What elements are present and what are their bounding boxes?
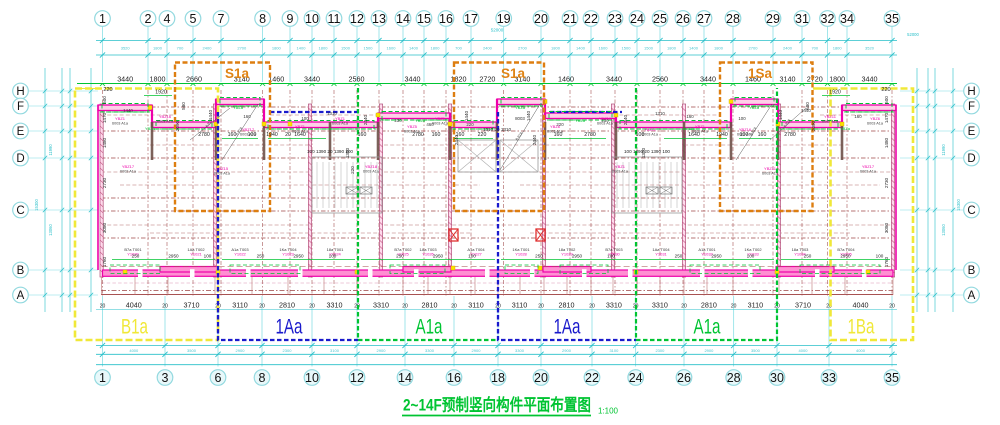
- svg-text:YBZ1: YBZ1: [435, 116, 446, 121]
- svg-text:2~14F预制竖向构件平面布置图: 2~14F预制竖向构件平面布置图: [403, 395, 591, 415]
- svg-text:27: 27: [697, 12, 711, 26]
- svg-text:2900: 2900: [472, 348, 482, 353]
- svg-text:100: 100: [204, 254, 212, 259]
- svg-text:2900: 2900: [562, 348, 572, 353]
- svg-text:6003 A1a: 6003 A1a: [822, 120, 839, 124]
- svg-text:YBZ1: YBZ1: [115, 116, 126, 121]
- svg-text:3140: 3140: [780, 75, 796, 84]
- svg-text:30: 30: [770, 371, 784, 385]
- svg-text:6003 A1a: 6003 A1a: [762, 172, 779, 176]
- svg-text:C: C: [16, 205, 24, 217]
- svg-text:8003: 8003: [515, 116, 525, 121]
- svg-text:1500: 1500: [364, 45, 374, 50]
- svg-text:25: 25: [653, 12, 667, 26]
- svg-text:700: 700: [455, 45, 462, 50]
- svg-text:3300: 3300: [515, 348, 525, 353]
- svg-text:52000: 52000: [907, 32, 919, 37]
- svg-text:YBZa: YBZa: [415, 118, 426, 123]
- svg-text:2560: 2560: [652, 75, 668, 84]
- svg-text:2090: 2090: [175, 120, 180, 131]
- svg-text:3100: 3100: [330, 348, 340, 353]
- svg-text:160: 160: [432, 132, 441, 138]
- svg-text:6003 A1a: 6003 A1a: [112, 122, 129, 126]
- svg-text:2300: 2300: [283, 348, 293, 353]
- svg-text:2300: 2300: [655, 348, 665, 353]
- svg-text:20: 20: [451, 304, 457, 310]
- svg-text:6003 A1a: 6003 A1a: [432, 122, 449, 126]
- svg-text:2950: 2950: [168, 254, 179, 259]
- svg-text:3440: 3440: [304, 75, 320, 84]
- svg-text:1480: 1480: [884, 137, 889, 148]
- svg-text:2780: 2780: [784, 132, 796, 138]
- svg-text:1:100: 1:100: [598, 407, 619, 416]
- svg-text:28: 28: [726, 12, 740, 26]
- svg-text:1Ba: 1Ba: [848, 316, 875, 339]
- svg-text:100 1390 20 1390 100: 100 1390 20 1390 100: [624, 149, 670, 154]
- svg-text:220: 220: [103, 87, 112, 93]
- svg-text:2400: 2400: [483, 45, 493, 50]
- svg-text:2440: 2440: [363, 114, 368, 125]
- svg-text:1: 1: [99, 12, 106, 26]
- svg-text:3310: 3310: [327, 301, 343, 310]
- svg-text:6003 A1a: 6003 A1a: [332, 122, 349, 126]
- svg-text:3310: 3310: [652, 301, 668, 310]
- svg-text:2440: 2440: [623, 114, 628, 125]
- svg-text:2400: 2400: [203, 45, 213, 50]
- svg-text:1500: 1500: [341, 45, 351, 50]
- svg-text:1400: 1400: [689, 45, 699, 50]
- svg-text:34: 34: [840, 12, 854, 26]
- svg-text:35: 35: [885, 12, 899, 26]
- svg-text:YBZ1: YBZ1: [335, 116, 346, 121]
- svg-text:13060: 13060: [48, 224, 53, 236]
- svg-text:2950: 2950: [840, 254, 851, 259]
- svg-text:1940: 1940: [266, 132, 278, 138]
- svg-text:100: 100: [329, 254, 337, 259]
- svg-text:22: 22: [584, 12, 598, 26]
- svg-text:1440: 1440: [464, 110, 469, 121]
- svg-text:3080: 3080: [102, 222, 107, 233]
- svg-text:18: 18: [491, 371, 505, 385]
- svg-text:1800: 1800: [150, 75, 166, 84]
- svg-text:YBZ18: YBZ18: [365, 164, 378, 169]
- svg-text:20: 20: [285, 132, 291, 138]
- svg-text:600: 600: [884, 96, 889, 104]
- svg-text:14: 14: [398, 371, 412, 385]
- svg-text:52000: 52000: [491, 28, 504, 33]
- svg-text:3500: 3500: [751, 348, 761, 353]
- svg-text:1Sa: 1Sa: [748, 66, 773, 81]
- svg-text:2440: 2440: [454, 134, 459, 145]
- svg-text:2780: 2780: [584, 132, 596, 138]
- svg-text:6003 A1a: 6003 A1a: [120, 170, 137, 174]
- svg-text:2720: 2720: [479, 75, 495, 84]
- svg-text:YBZ17: YBZ17: [122, 164, 135, 169]
- svg-text:20: 20: [731, 304, 737, 310]
- svg-text:1800: 1800: [431, 45, 441, 50]
- svg-text:Y1021: Y1021: [190, 252, 202, 257]
- svg-text:2810: 2810: [559, 301, 575, 310]
- svg-text:6003 A1a: 6003 A1a: [547, 130, 564, 134]
- svg-text:1440: 1440: [123, 108, 133, 113]
- svg-text:6003 A1a: 6003 A1a: [214, 172, 231, 176]
- svg-text:A1a: A1a: [694, 316, 721, 339]
- svg-text:29: 29: [766, 12, 780, 26]
- svg-text:A1a: A1a: [416, 316, 443, 339]
- svg-text:220: 220: [350, 166, 355, 174]
- svg-text:20: 20: [162, 304, 168, 310]
- svg-text:32: 32: [821, 12, 835, 26]
- svg-text:YBZ1: YBZ1: [615, 164, 626, 169]
- svg-text:12: 12: [350, 371, 364, 385]
- svg-text:1500: 1500: [644, 45, 654, 50]
- svg-text:YBZ6: YBZ6: [870, 116, 881, 121]
- svg-text:1920: 1920: [829, 90, 841, 96]
- svg-text:2950: 2950: [433, 254, 444, 259]
- svg-text:3110: 3110: [748, 301, 763, 310]
- svg-text:250: 250: [804, 254, 812, 259]
- svg-text:16: 16: [439, 12, 453, 26]
- svg-text:20: 20: [402, 304, 408, 310]
- svg-text:S1a: S1a: [225, 66, 250, 81]
- svg-text:600: 600: [102, 96, 107, 104]
- svg-text:20: 20: [538, 304, 544, 310]
- svg-text:250: 250: [396, 254, 404, 259]
- svg-text:5: 5: [190, 12, 197, 26]
- svg-text:6: 6: [215, 371, 222, 385]
- svg-text:160: 160: [686, 114, 694, 119]
- svg-text:100: 100: [301, 116, 309, 121]
- svg-text:160: 160: [358, 132, 367, 138]
- svg-text:13060: 13060: [941, 224, 946, 236]
- svg-text:1800: 1800: [319, 45, 329, 50]
- svg-text:1800: 1800: [667, 45, 677, 50]
- svg-text:1310: 1310: [655, 111, 665, 116]
- svg-text:D: D: [967, 153, 975, 165]
- svg-text:10: 10: [305, 12, 319, 26]
- svg-text:16: 16: [447, 371, 461, 385]
- svg-text:1800: 1800: [829, 75, 845, 84]
- svg-text:2730: 2730: [884, 177, 889, 188]
- svg-text:1440: 1440: [526, 110, 531, 121]
- svg-text:YBZ1: YBZ1: [695, 124, 706, 129]
- svg-text:20: 20: [534, 12, 548, 26]
- svg-text:6003 A1a: 6003 A1a: [612, 170, 629, 174]
- svg-text:2900: 2900: [377, 348, 387, 353]
- svg-text:B: B: [968, 265, 976, 277]
- svg-text:D: D: [16, 153, 24, 165]
- svg-text:1: 1: [99, 371, 106, 385]
- svg-text:6003 A1a: 6003 A1a: [157, 120, 174, 124]
- svg-text:580: 580: [181, 102, 186, 110]
- svg-text:1800: 1800: [714, 45, 724, 50]
- svg-text:160: 160: [758, 132, 767, 138]
- svg-text:F: F: [968, 101, 975, 113]
- svg-text:700: 700: [177, 45, 184, 50]
- svg-text:2950: 2950: [711, 254, 722, 259]
- svg-text:3080: 3080: [884, 222, 889, 233]
- svg-text:100 1390 20 1390 100: 100 1390 20 1390 100: [307, 149, 353, 154]
- svg-text:1760: 1760: [884, 256, 889, 267]
- svg-text:2810: 2810: [701, 301, 717, 310]
- svg-text:35: 35: [885, 371, 899, 385]
- svg-text:1440: 1440: [778, 109, 783, 120]
- svg-text:1470: 1470: [884, 112, 889, 123]
- svg-text:YBZa: YBZa: [749, 105, 760, 110]
- svg-text:YBZ16: YBZ16: [159, 114, 172, 119]
- svg-text:31: 31: [795, 12, 809, 26]
- svg-text:9: 9: [287, 12, 294, 26]
- svg-text:11990: 11990: [48, 144, 53, 156]
- svg-text:4040: 4040: [853, 301, 869, 310]
- svg-text:3: 3: [162, 371, 169, 385]
- svg-text:6003 A1a: 6003 A1a: [867, 122, 884, 126]
- svg-text:220: 220: [478, 132, 487, 138]
- svg-text:YBZa: YBZa: [515, 105, 526, 110]
- svg-text:20: 20: [681, 304, 687, 310]
- svg-text:100: 100: [738, 116, 746, 121]
- svg-text:8: 8: [259, 12, 266, 26]
- svg-text:2780: 2780: [198, 132, 210, 138]
- svg-text:YBZa: YBZa: [840, 126, 851, 131]
- svg-text:2: 2: [145, 12, 152, 26]
- svg-text:YBZa: YBZa: [575, 118, 586, 123]
- svg-text:YBZ11: YBZ11: [644, 127, 657, 132]
- svg-text:A: A: [17, 290, 25, 302]
- svg-text:1600: 1600: [387, 45, 397, 50]
- svg-text:15300: 15300: [956, 199, 961, 211]
- svg-text:1480: 1480: [102, 137, 107, 148]
- svg-text:3310: 3310: [606, 301, 622, 310]
- svg-text:1600: 1600: [599, 45, 609, 50]
- svg-text:2720: 2720: [807, 75, 823, 84]
- svg-text:2950: 2950: [293, 254, 304, 259]
- svg-text:14: 14: [396, 12, 410, 26]
- svg-text:26: 26: [677, 371, 691, 385]
- svg-text:Y1022: Y1022: [234, 252, 246, 257]
- svg-text:15300: 15300: [34, 199, 39, 211]
- svg-text:6003 A1a: 6003 A1a: [597, 122, 614, 126]
- svg-text:230: 230: [394, 118, 402, 123]
- svg-text:H: H: [16, 86, 24, 98]
- svg-text:3440: 3440: [405, 75, 421, 84]
- svg-text:4000: 4000: [856, 348, 866, 353]
- svg-text:7: 7: [218, 12, 225, 26]
- svg-text:100: 100: [876, 254, 884, 259]
- svg-text:E: E: [968, 126, 976, 138]
- svg-text:6003 A1a: 6003 A1a: [404, 130, 421, 134]
- svg-text:1800: 1800: [153, 45, 163, 50]
- svg-text:YBZ15: YBZ15: [216, 166, 229, 171]
- svg-text:11990: 11990: [941, 144, 946, 156]
- svg-text:3440: 3440: [606, 75, 622, 84]
- svg-text:6003 A1a: 6003 A1a: [292, 130, 309, 134]
- svg-text:1400: 1400: [576, 45, 586, 50]
- svg-text:1500: 1500: [622, 45, 632, 50]
- svg-text:YBZ17: YBZ17: [862, 164, 875, 169]
- svg-text:YBZ5: YBZ5: [407, 124, 418, 129]
- svg-text:YBZ1: YBZ1: [295, 124, 306, 129]
- svg-text:1400: 1400: [297, 45, 307, 50]
- svg-text:12: 12: [350, 12, 364, 26]
- svg-text:19: 19: [497, 12, 511, 26]
- svg-text:24: 24: [630, 12, 644, 26]
- svg-text:20: 20: [259, 304, 265, 310]
- svg-text:100: 100: [747, 254, 755, 259]
- svg-text:1800: 1800: [551, 45, 561, 50]
- svg-text:100: 100: [468, 254, 476, 259]
- svg-text:24: 24: [629, 371, 643, 385]
- svg-text:C: C: [967, 205, 975, 217]
- svg-text:1470: 1470: [102, 112, 107, 123]
- svg-text:4000: 4000: [129, 348, 139, 353]
- svg-text:8: 8: [259, 371, 266, 385]
- svg-text:22: 22: [585, 371, 599, 385]
- svg-text:S1a: S1a: [501, 66, 526, 81]
- svg-text:3300: 3300: [425, 348, 435, 353]
- svg-text:2090: 2090: [811, 120, 816, 131]
- svg-text:3520: 3520: [865, 45, 875, 50]
- svg-text:33: 33: [822, 371, 836, 385]
- svg-text:2660: 2660: [186, 75, 202, 84]
- svg-text:Y1031: Y1031: [655, 252, 667, 257]
- svg-text:20: 20: [309, 304, 315, 310]
- svg-text:3440: 3440: [862, 75, 878, 84]
- svg-text:26: 26: [676, 12, 690, 26]
- svg-text:2810: 2810: [422, 301, 438, 310]
- svg-text:20: 20: [534, 371, 548, 385]
- svg-text:1310 20 1310: 1310 20 1310: [483, 127, 512, 132]
- svg-text:100: 100: [607, 254, 615, 259]
- svg-text:3500: 3500: [187, 348, 197, 353]
- svg-text:YBZa: YBZa: [233, 105, 244, 110]
- svg-text:3710: 3710: [184, 301, 200, 310]
- svg-text:YBZ16: YBZ16: [599, 116, 612, 121]
- svg-text:YBZ6: YBZ6: [550, 124, 561, 129]
- svg-text:220: 220: [466, 122, 474, 127]
- svg-text:160: 160: [854, 114, 862, 119]
- svg-text:E: E: [17, 126, 25, 138]
- svg-text:17: 17: [464, 12, 478, 26]
- svg-text:2700: 2700: [749, 45, 759, 50]
- svg-text:B: B: [17, 265, 25, 277]
- svg-text:3100: 3100: [609, 348, 619, 353]
- svg-text:YBZa: YBZa: [685, 126, 696, 131]
- svg-text:6003 A1a: 6003 A1a: [363, 170, 380, 174]
- svg-text:3440: 3440: [700, 75, 716, 84]
- svg-text:YBZ17: YBZ17: [242, 127, 255, 132]
- svg-text:21: 21: [563, 12, 577, 26]
- svg-text:23: 23: [608, 12, 622, 26]
- svg-text:1800: 1800: [833, 45, 843, 50]
- svg-text:1Aa: 1Aa: [276, 316, 303, 339]
- svg-text:2810: 2810: [279, 301, 295, 310]
- svg-text:6003 A1a: 6003 A1a: [240, 133, 257, 137]
- svg-text:2560: 2560: [349, 75, 365, 84]
- svg-text:3110: 3110: [468, 301, 483, 310]
- svg-text:20: 20: [589, 304, 595, 310]
- svg-text:6003 A1a: 6003 A1a: [860, 170, 877, 174]
- svg-text:20: 20: [100, 304, 106, 310]
- svg-text:H: H: [967, 86, 975, 98]
- svg-text:580: 580: [805, 102, 810, 110]
- svg-text:3520: 3520: [121, 45, 131, 50]
- svg-text:250: 250: [132, 254, 140, 259]
- svg-text:YBZ11: YBZ11: [824, 114, 837, 119]
- svg-text:Y1028: Y1028: [515, 252, 527, 257]
- svg-text:250: 250: [257, 254, 265, 259]
- svg-text:13: 13: [372, 12, 386, 26]
- svg-text:10: 10: [305, 371, 319, 385]
- svg-text:11: 11: [328, 12, 341, 26]
- svg-text:2900: 2900: [236, 348, 246, 353]
- svg-text:1940: 1940: [716, 132, 728, 138]
- svg-text:3310: 3310: [373, 301, 389, 310]
- svg-text:3710: 3710: [795, 301, 811, 310]
- svg-text:250: 250: [535, 254, 543, 259]
- svg-text:YBZa: YBZa: [145, 126, 156, 131]
- svg-text:3440: 3440: [117, 75, 133, 84]
- svg-text:1760: 1760: [102, 256, 107, 267]
- svg-text:YBZ11: YBZ11: [764, 166, 777, 171]
- svg-text:6003 A1a: 6003 A1a: [642, 133, 659, 137]
- svg-text:20: 20: [889, 304, 895, 310]
- svg-text:1800: 1800: [272, 45, 282, 50]
- svg-text:2700: 2700: [518, 45, 528, 50]
- svg-text:28: 28: [727, 371, 741, 385]
- svg-text:700: 700: [811, 45, 818, 50]
- svg-text:2400: 2400: [783, 45, 793, 50]
- svg-text:3110: 3110: [512, 301, 527, 310]
- svg-text:1920: 1920: [155, 90, 167, 96]
- svg-text:2440: 2440: [532, 134, 537, 145]
- svg-text:250: 250: [675, 254, 683, 259]
- svg-text:3110: 3110: [232, 301, 247, 310]
- svg-text:F: F: [17, 101, 24, 113]
- svg-text:1400: 1400: [409, 45, 419, 50]
- svg-text:220: 220: [881, 87, 890, 93]
- svg-text:15: 15: [417, 12, 431, 26]
- svg-text:4040: 4040: [126, 301, 142, 310]
- svg-text:2950: 2950: [572, 254, 583, 259]
- svg-text:1Aa: 1Aa: [554, 316, 581, 339]
- svg-text:1460: 1460: [558, 75, 574, 84]
- svg-text:2700: 2700: [237, 45, 247, 50]
- svg-text:4: 4: [164, 12, 171, 26]
- svg-text:4000: 4000: [799, 348, 809, 353]
- svg-text:1440: 1440: [208, 109, 213, 120]
- svg-text:2900: 2900: [704, 348, 714, 353]
- svg-text:2730: 2730: [102, 177, 107, 188]
- svg-text:A: A: [968, 290, 976, 302]
- svg-text:B1a: B1a: [121, 316, 148, 339]
